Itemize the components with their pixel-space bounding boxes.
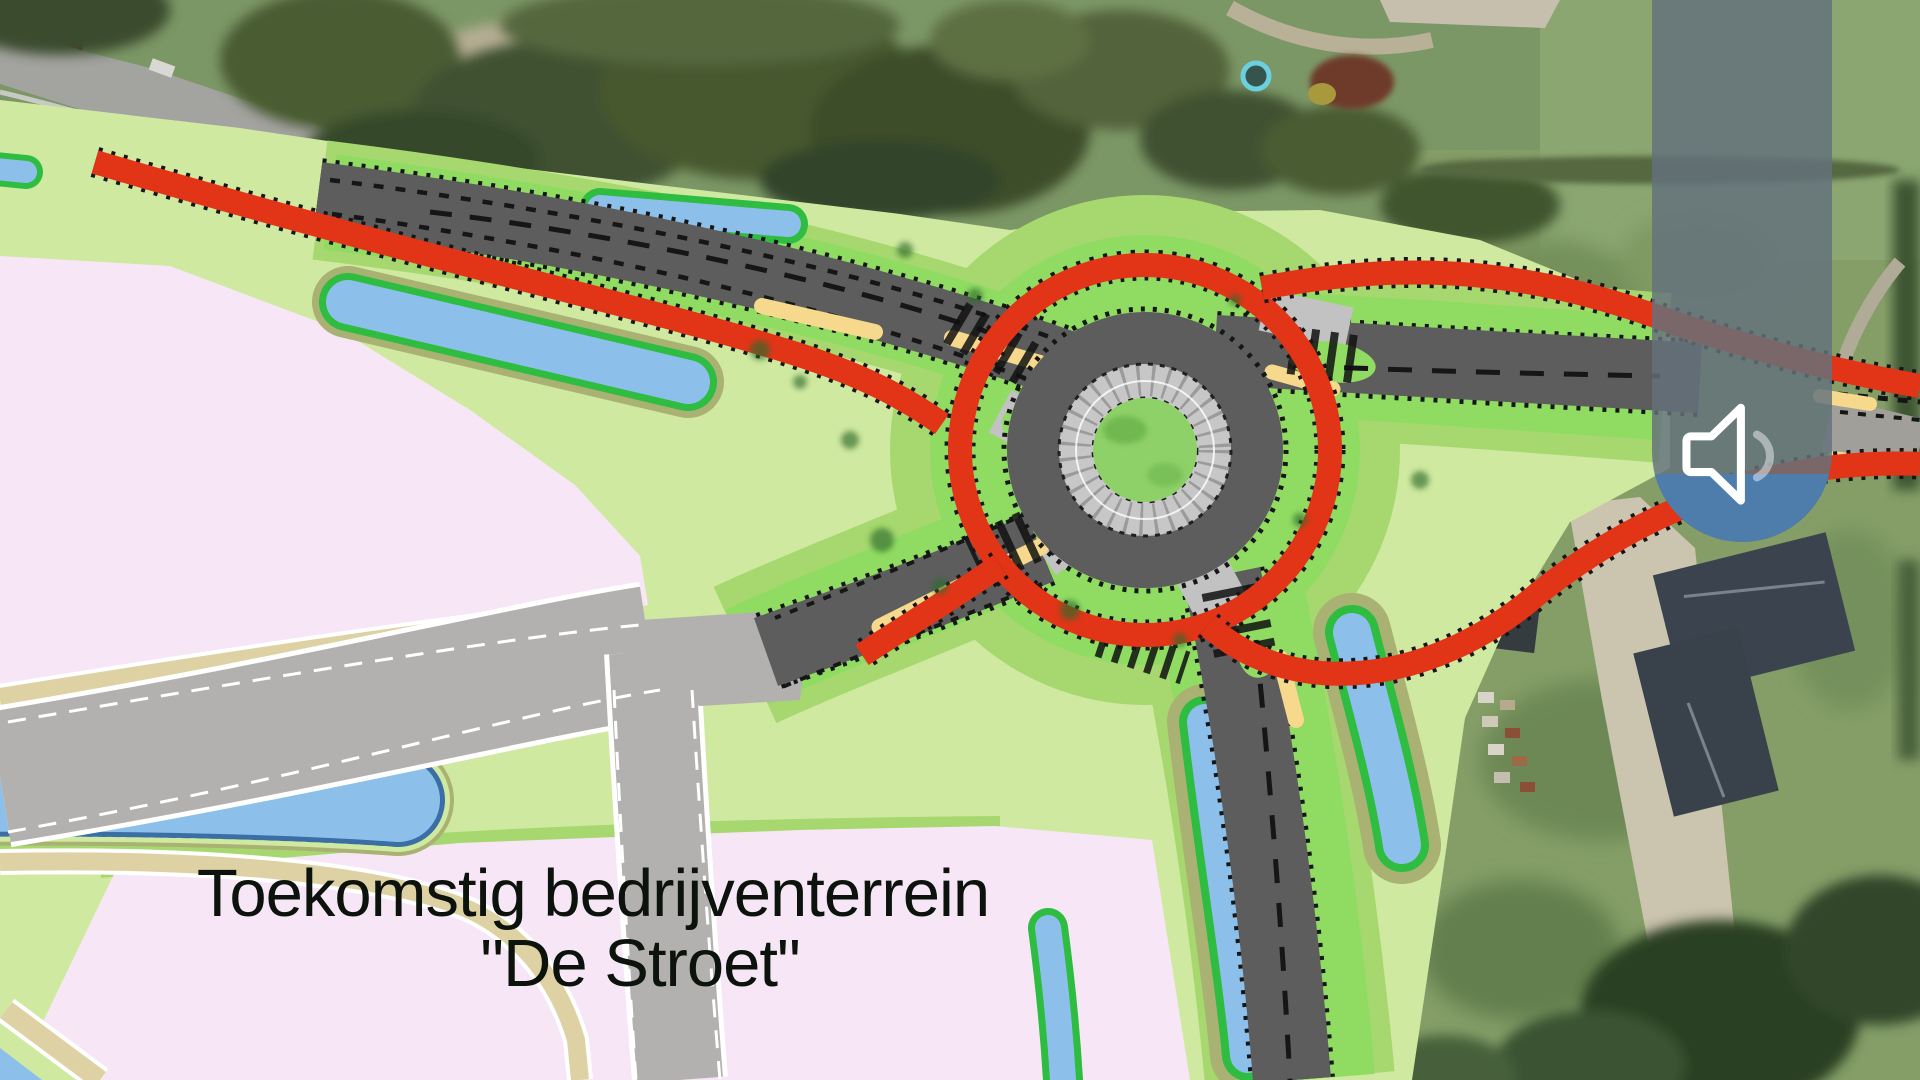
area-label-line1: Toekomstig bedrijventerrein [197, 856, 989, 931]
speaker-icon [1682, 402, 1798, 510]
area-label-line2: "De Stroet" [480, 926, 800, 1001]
photo-road-right [1828, 424, 1920, 446]
roundabout-center-island [1093, 398, 1197, 502]
volume-overlay[interactable] [1652, 0, 1832, 542]
map-canvas: Toekomstig bedrijventerrein "De Stroet" [0, 0, 1920, 1080]
pool [1243, 63, 1269, 89]
roundabout-design-map: Toekomstig bedrijventerrein "De Stroet" [0, 0, 1920, 1080]
